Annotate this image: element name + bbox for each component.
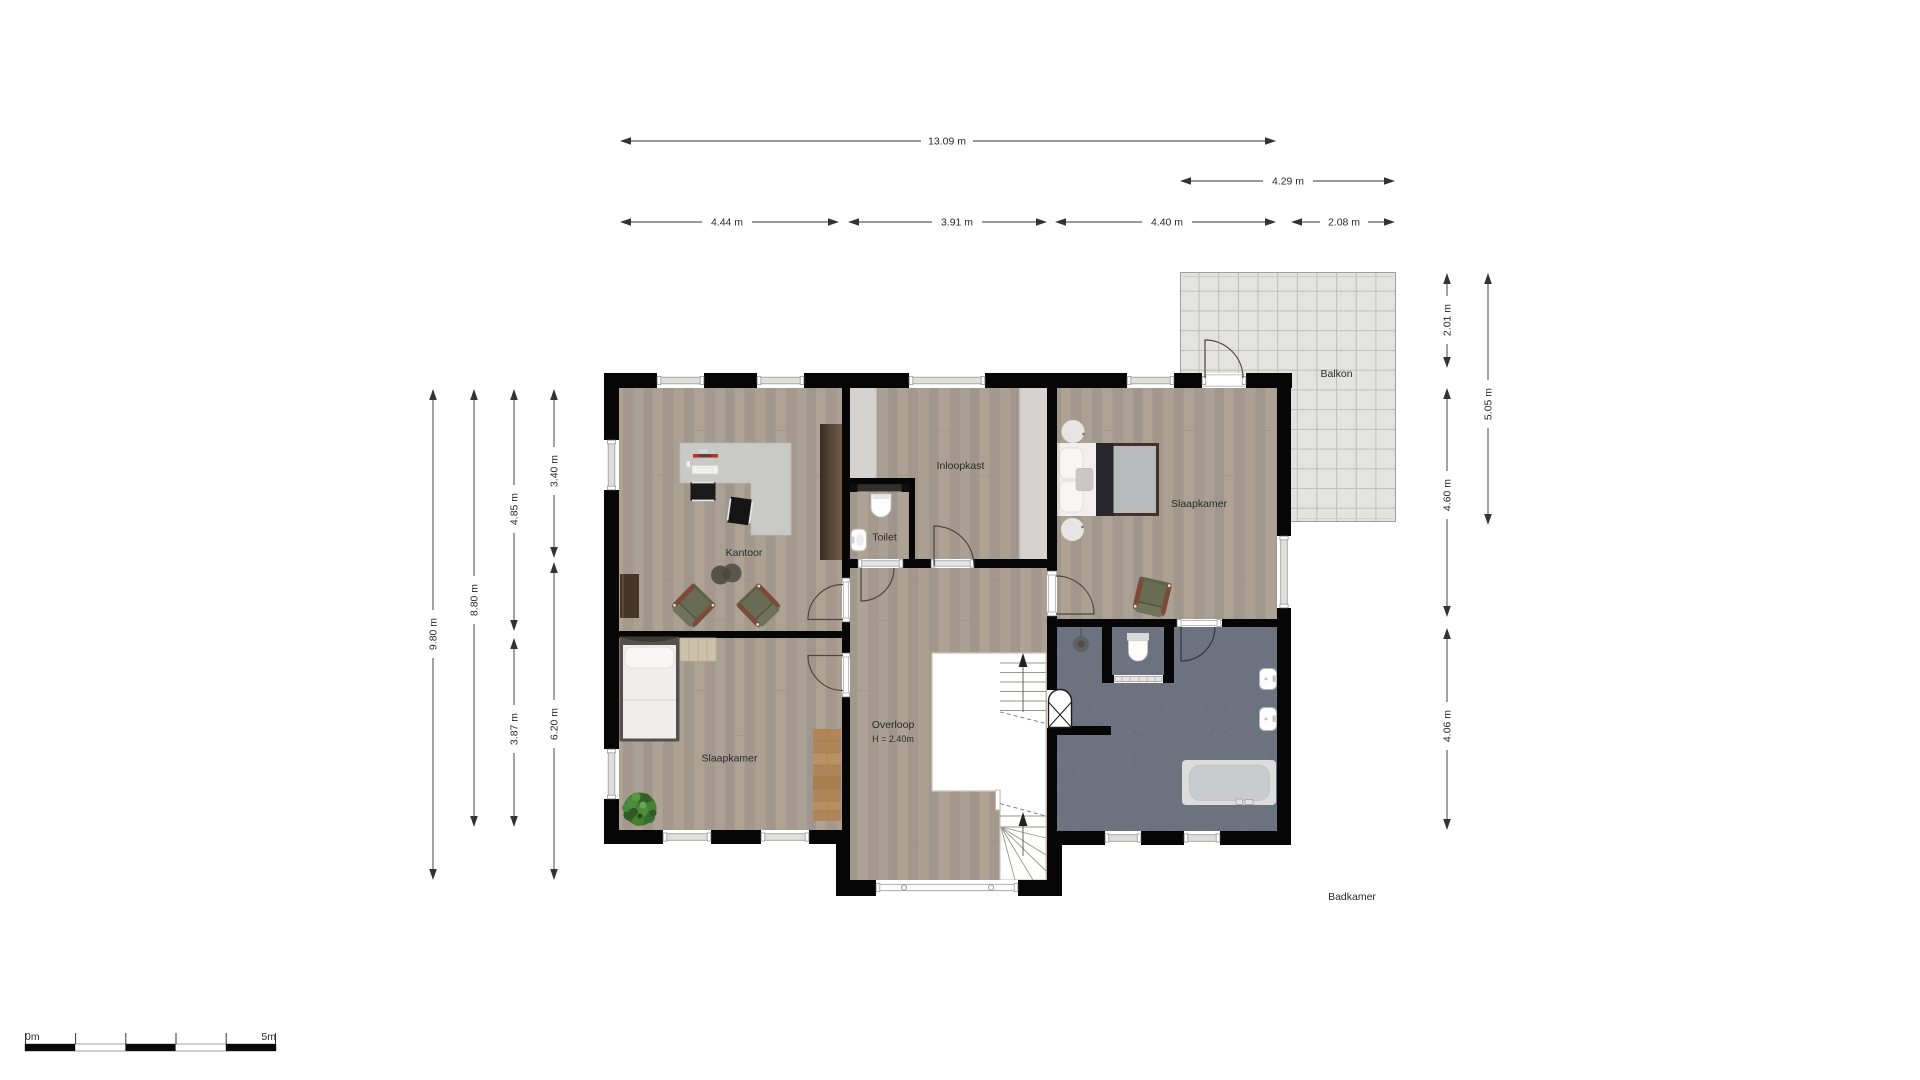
svg-text:4.60 m: 4.60 m bbox=[1442, 479, 1454, 511]
svg-text:Slaapkamer: Slaapkamer bbox=[1171, 498, 1228, 510]
svg-text:4.85 m: 4.85 m bbox=[509, 493, 521, 525]
svg-text:Badkamer: Badkamer bbox=[1328, 891, 1376, 903]
svg-text:0m: 0m bbox=[25, 1031, 40, 1043]
svg-text:8.80 m: 8.80 m bbox=[469, 584, 481, 616]
svg-text:4.06 m: 4.06 m bbox=[1442, 710, 1454, 742]
svg-text:5m: 5m bbox=[261, 1031, 276, 1043]
svg-text:3.87 m: 3.87 m bbox=[509, 713, 521, 745]
svg-text:Balkon: Balkon bbox=[1320, 368, 1352, 380]
svg-text:3.91 m: 3.91 m bbox=[941, 217, 973, 229]
svg-text:4.40 m: 4.40 m bbox=[1151, 217, 1183, 229]
svg-text:5.05 m: 5.05 m bbox=[1483, 388, 1495, 420]
svg-text:Slaapkamer: Slaapkamer bbox=[701, 753, 758, 765]
svg-text:4.29 m: 4.29 m bbox=[1272, 176, 1304, 188]
svg-text:3.40 m: 3.40 m bbox=[549, 455, 561, 487]
svg-text:Toilet: Toilet bbox=[872, 532, 897, 544]
svg-text:Kantoor: Kantoor bbox=[726, 547, 763, 559]
svg-text:13.09 m: 13.09 m bbox=[928, 136, 966, 148]
svg-text:9.80 m: 9.80 m bbox=[428, 618, 440, 650]
svg-text:4.44 m: 4.44 m bbox=[711, 217, 743, 229]
svg-text:Inloopkast: Inloopkast bbox=[937, 460, 985, 472]
svg-text:H = 2.40m: H = 2.40m bbox=[872, 734, 914, 744]
svg-text:6.20 m: 6.20 m bbox=[549, 708, 561, 740]
svg-text:2.01 m: 2.01 m bbox=[1442, 304, 1454, 336]
svg-text:Overloop: Overloop bbox=[872, 719, 915, 731]
svg-text:2.08 m: 2.08 m bbox=[1328, 217, 1360, 229]
